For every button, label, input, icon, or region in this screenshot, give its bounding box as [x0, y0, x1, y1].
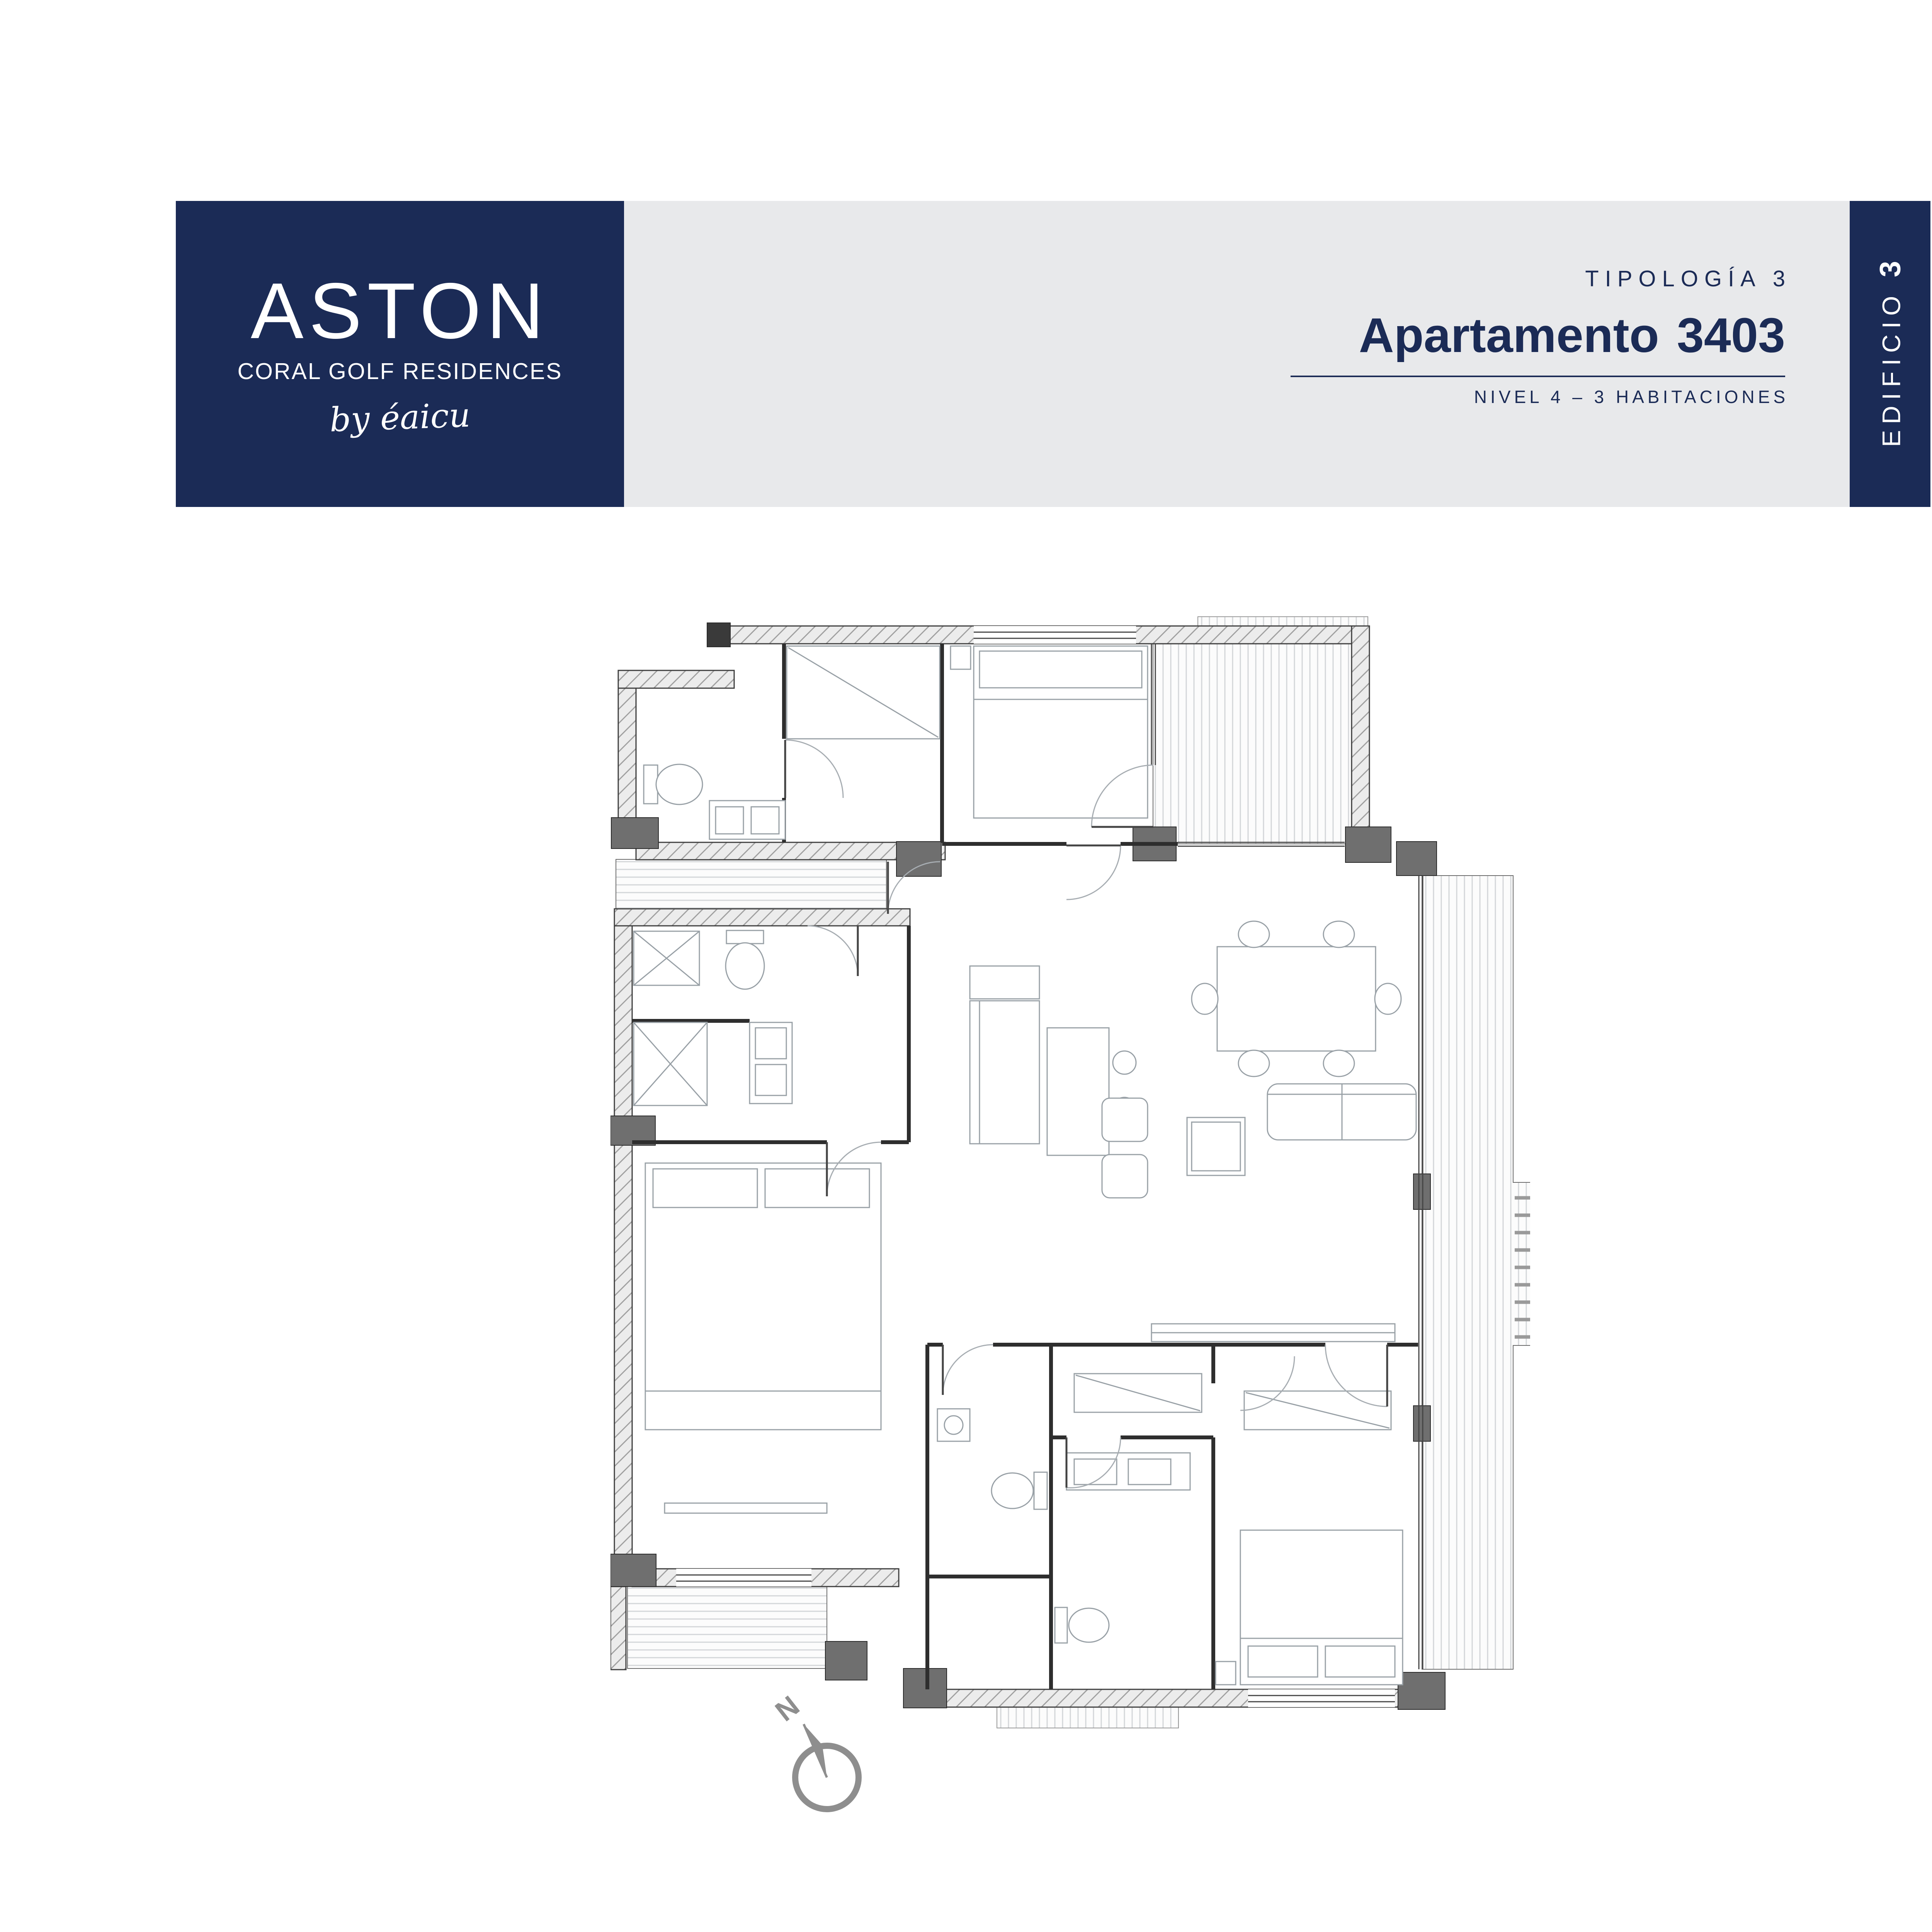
north-compass: N: [769, 1689, 859, 1809]
edificio-number: 3: [1874, 261, 1906, 277]
level-info-label: NIVEL 4 – 3 HABITACIONES: [1159, 386, 1789, 407]
apartment-title: Apartamento 3403: [1159, 307, 1785, 363]
apartment-number: 3403: [1677, 307, 1785, 363]
aston-logo: ASTON CORAL GOLF RESIDENCES by éaicu: [176, 201, 624, 507]
floor-plan-drawing: N: [611, 603, 1530, 1824]
apartment-word: Apartamento: [1359, 307, 1659, 363]
north-label: N: [769, 1689, 805, 1727]
title-block: TIPOLOGÍA 3 Apartamento 3403 NIVEL 4 – 3…: [1159, 266, 1785, 407]
logo-byline: by éaicu: [329, 396, 471, 439]
typology-label: TIPOLOGÍA 3: [1159, 266, 1791, 292]
edificio-word: EDIFICIO: [1877, 290, 1905, 447]
logo-subtitle: CORAL GOLF RESIDENCES: [237, 358, 562, 384]
edificio-strip: EDIFICIO 3: [1850, 201, 1930, 507]
edificio-label: EDIFICIO 3: [1873, 261, 1907, 447]
title-underline: [1291, 376, 1785, 377]
brochure-sheet: ASTON CORAL GOLF RESIDENCES by éaicu TIP…: [0, 0, 1932, 1932]
logo-brand-text: ASTON: [251, 271, 549, 350]
